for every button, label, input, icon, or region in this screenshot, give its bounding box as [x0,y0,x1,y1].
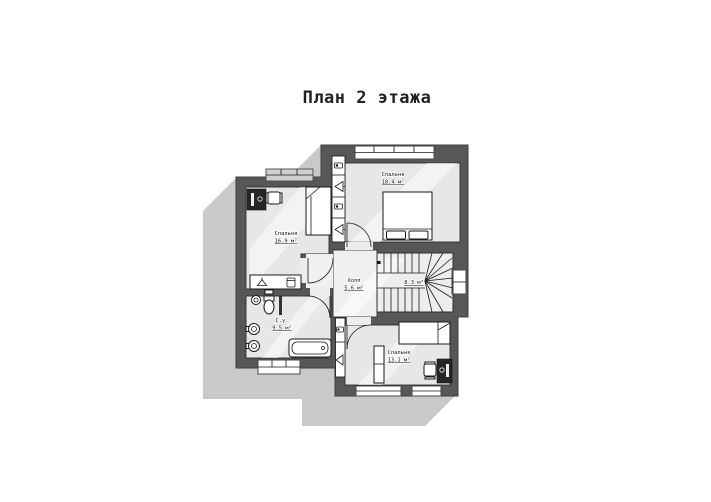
room-area: 18.4 м² [382,179,405,186]
toilet-icon [264,296,274,314]
room-area: 13.1 м² [388,357,411,364]
room-label-bedroom-top: Спальня 18.4 м² [382,172,405,186]
room-name: Холл [348,278,361,284]
bathroom-partition-wall [279,296,282,315]
chair-icon-left [266,192,282,204]
stairs-start-dot [378,261,381,264]
vent-shaft-top [332,156,345,242]
desk-icon-bottom [437,359,452,383]
window-icon-bedroom-bottom-1 [356,386,401,396]
bed-icon-top [383,192,432,240]
room-area: 8.3 м² [404,279,423,286]
window-icon-bedroom-bottom-2 [412,386,441,396]
bathtub-icon [289,339,331,357]
chair-icon-bottom [424,362,436,379]
room-area: 5.6 м² [344,285,363,292]
window-icon-bedroom-left [266,169,313,181]
shelf-icon-left [250,275,301,289]
bathroom-shelf [265,290,273,294]
room-name: С.у. [276,318,289,324]
room-name: Спальня [275,231,298,237]
room-area: 16.9 м² [275,238,298,245]
room-name: Спальня [388,350,411,356]
desk-icon-left [247,189,266,210]
bed-icon-left [306,187,331,235]
vent-shaft-bottom [336,318,346,377]
room-label-stairs: 8.3 м² [404,279,423,286]
room-area: 9.5 м² [272,325,291,332]
sink-icon-corner [252,296,261,305]
room-label-bedroom-left: Спальня 16.9 м² [275,231,298,245]
window-icon-stairs [452,270,466,294]
window-icon-bathroom [258,360,300,374]
bed-icon-bottom [399,322,450,344]
room-name: Спальня [382,172,405,178]
window-icon-bedroom-top [355,146,434,159]
room-label-bedroom-bottom: Спальня 13.1 м² [388,350,411,364]
floor-plan: Спальня 18.4 м² Спальня 16.9 м² Холл 5.6… [0,0,711,502]
wardrobe-icon-bottom [374,346,384,383]
